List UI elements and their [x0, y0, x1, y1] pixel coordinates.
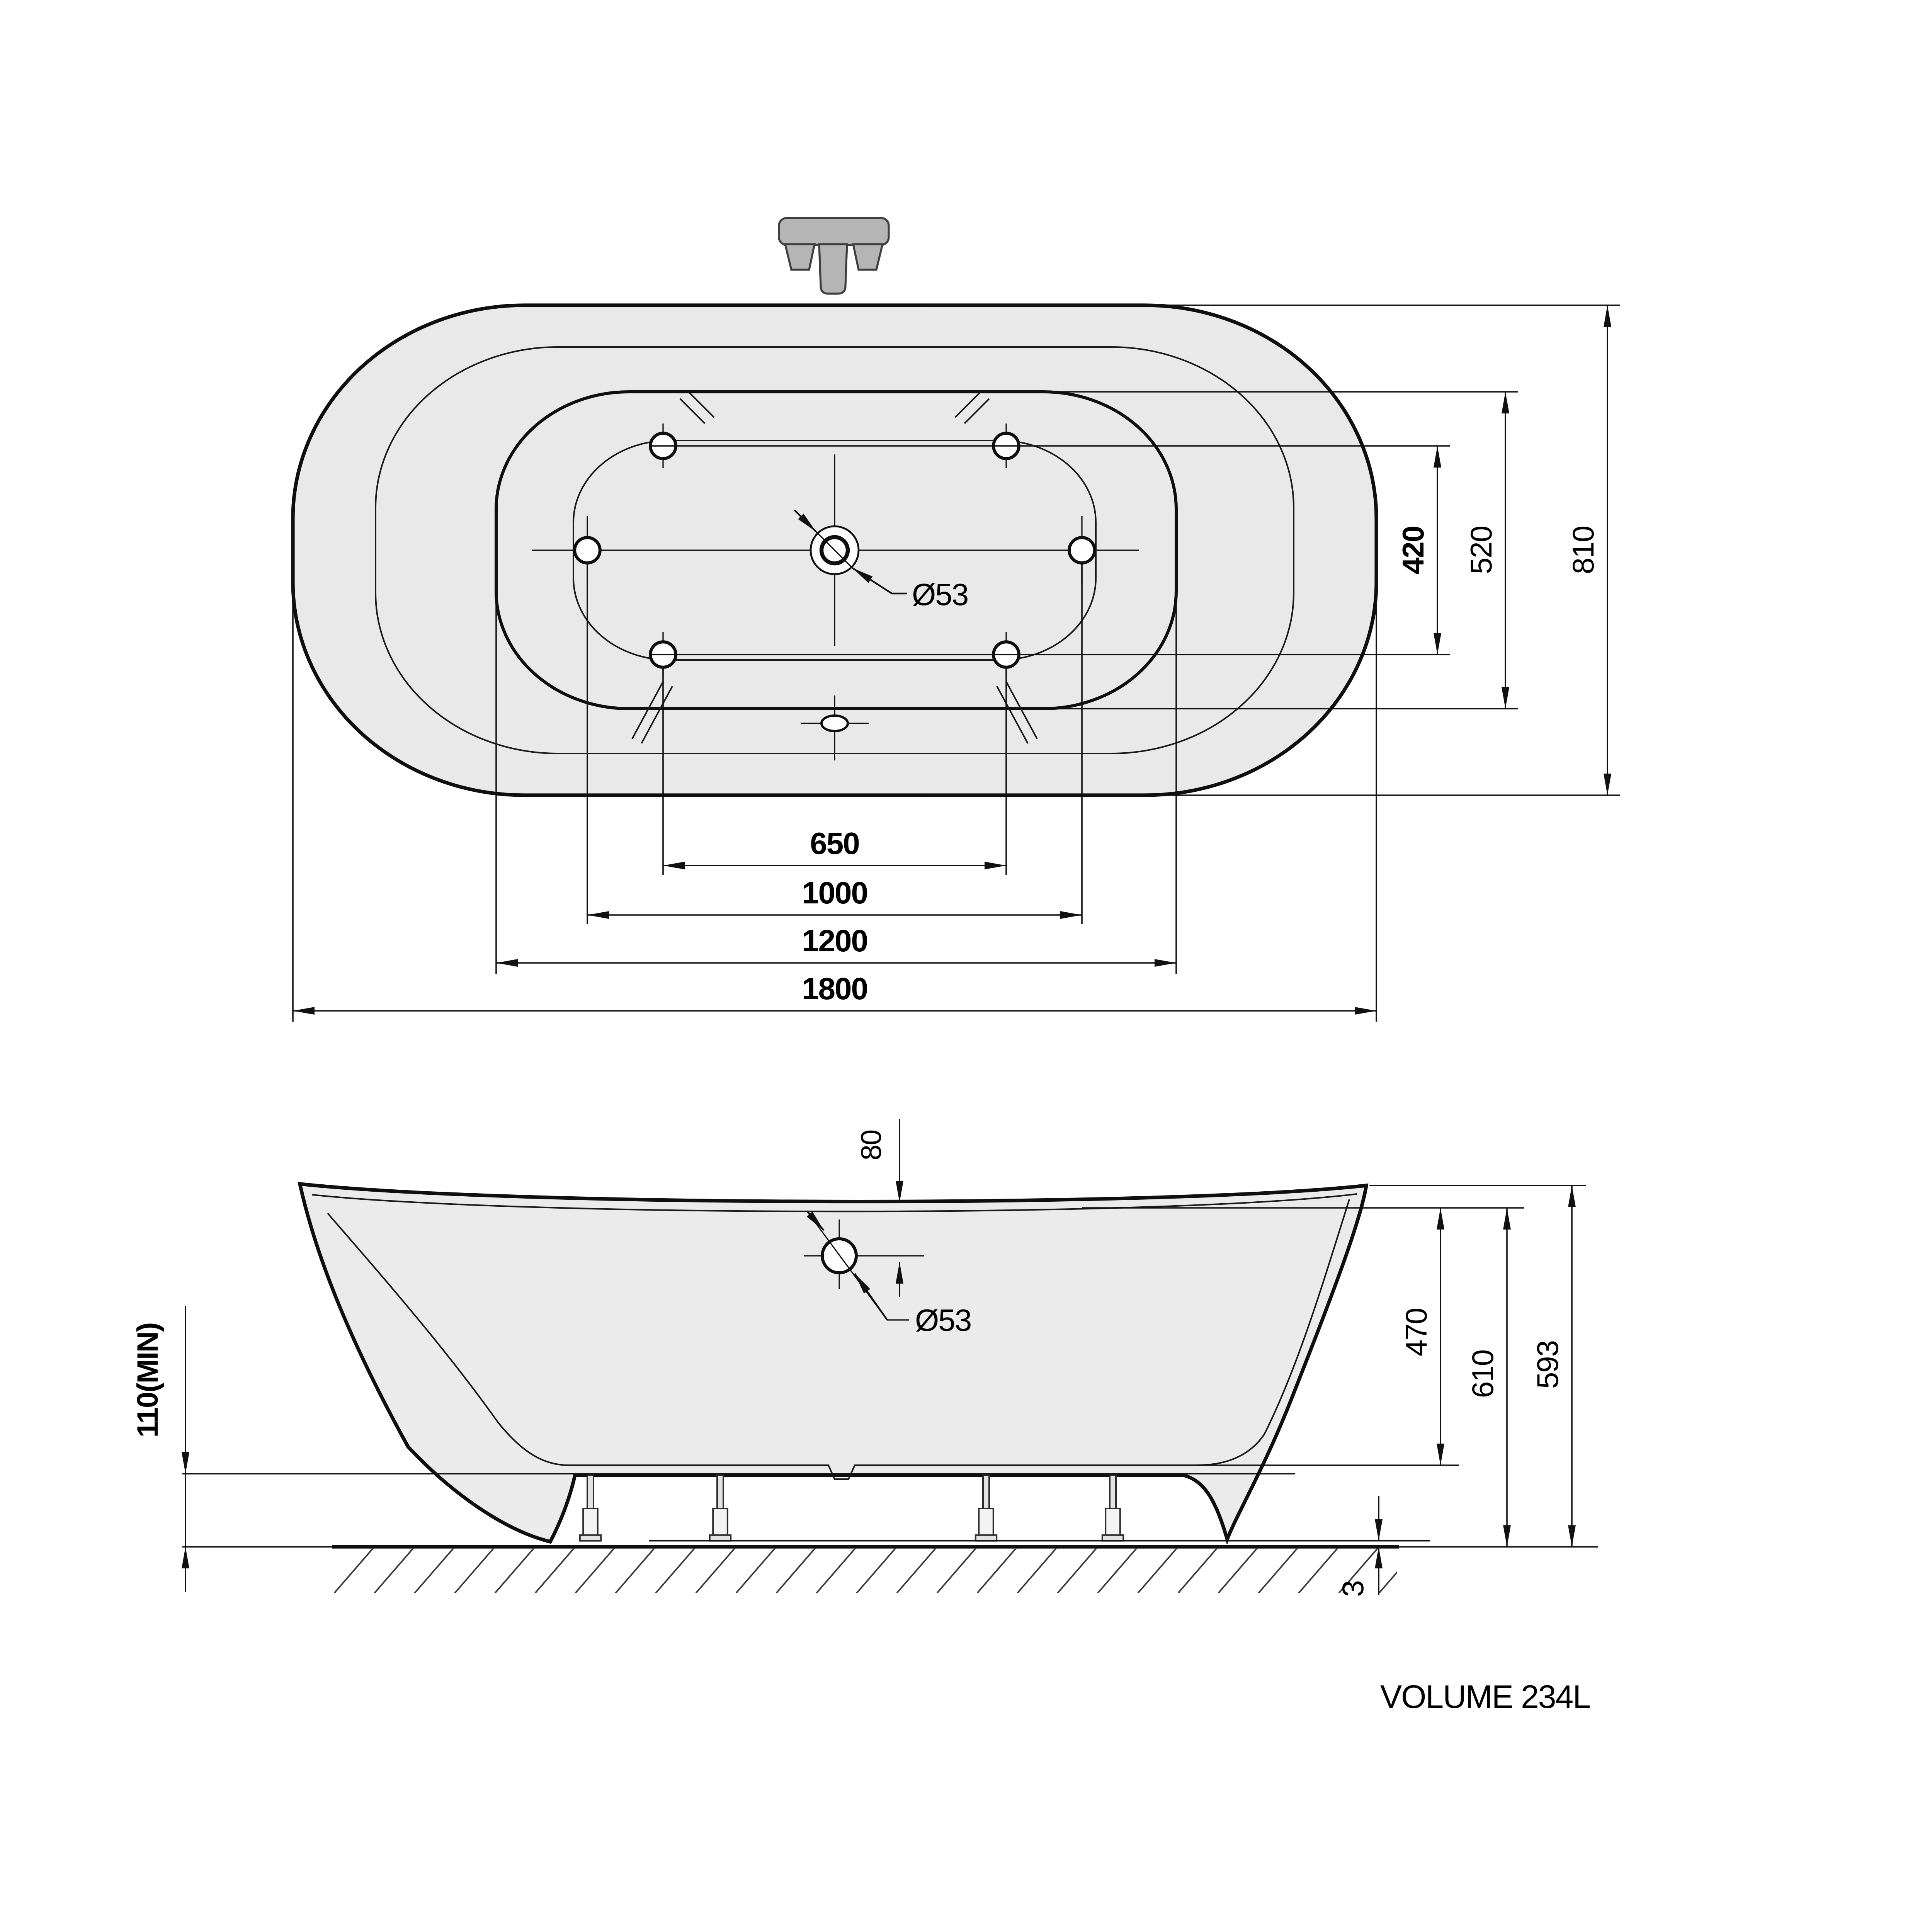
- dim-470: 470: [1399, 1208, 1440, 1465]
- leg: [710, 1475, 731, 1541]
- technical-drawing-page: Ø53 420 520: [0, 0, 1932, 1932]
- dim-1200-label: 1200: [802, 923, 867, 958]
- dim-470-label: 470: [1399, 1308, 1433, 1356]
- dim-80-label: 80: [855, 1130, 887, 1160]
- dim-420: 420: [1396, 446, 1437, 655]
- dim-810: 810: [1566, 305, 1607, 795]
- drain-diameter-label: Ø53: [912, 577, 968, 612]
- faucet-handle-left-icon: [785, 244, 815, 270]
- dim-110-min: 110(MIN): [131, 1306, 185, 1592]
- leg: [1102, 1475, 1123, 1541]
- tub-side-silhouette: [300, 1184, 1366, 1542]
- volume-label: VOLUME 234L: [1380, 1679, 1590, 1715]
- dim-1000: 1000: [587, 876, 1082, 915]
- floor-hatching: [334, 1548, 1397, 1593]
- drain-diameter-label-side: Ø53: [915, 1303, 971, 1337]
- support-legs: [580, 1475, 1123, 1541]
- faucet-icon: [779, 218, 889, 294]
- dim-1800: 1800: [293, 971, 1376, 1011]
- dim-520: 520: [1464, 392, 1505, 709]
- dim-810-label: 810: [1566, 526, 1600, 574]
- leg: [976, 1475, 997, 1541]
- side-view: Ø53 80 470 610 593: [131, 1119, 1598, 1597]
- dim-610: 610: [1466, 1208, 1507, 1547]
- jet-hole: [575, 537, 600, 563]
- faucet-handle-right-icon: [853, 244, 883, 270]
- dim-610-label: 610: [1466, 1350, 1500, 1398]
- top-view: Ø53 420 520: [293, 218, 1620, 1022]
- dim-110-label: 110(MIN): [131, 1323, 164, 1438]
- dim-593: 593: [1531, 1185, 1572, 1547]
- faucet-spout-icon: [819, 244, 847, 294]
- faucet-deck-bar: [779, 218, 889, 245]
- dim-1200: 1200: [496, 923, 1176, 963]
- bathtub-drawing: Ø53 420 520: [0, 0, 1932, 1932]
- dim-1000-label: 1000: [802, 876, 867, 910]
- jet-hole: [1069, 537, 1095, 563]
- dim-650-label: 650: [810, 826, 859, 861]
- dim-593-label: 593: [1531, 1341, 1565, 1389]
- dim-420-label: 420: [1396, 526, 1430, 574]
- dim-1800-label: 1800: [802, 971, 867, 1006]
- dim-3-label: 3: [1336, 1581, 1370, 1597]
- dim-520-label: 520: [1464, 526, 1498, 574]
- leg: [580, 1475, 601, 1541]
- dim-650: 650: [663, 826, 1006, 866]
